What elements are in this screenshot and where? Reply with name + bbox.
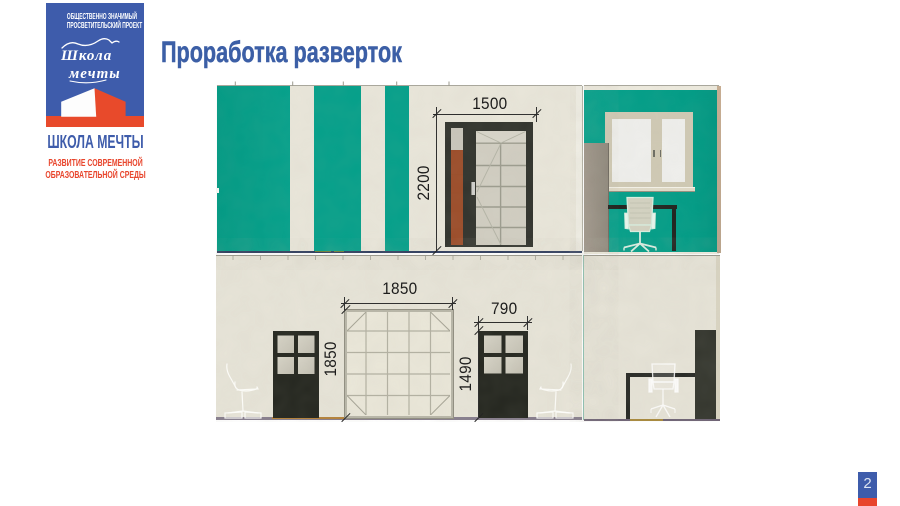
svg-text:мечты: мечты xyxy=(68,66,121,82)
svg-text:Школа: Школа xyxy=(60,48,112,64)
